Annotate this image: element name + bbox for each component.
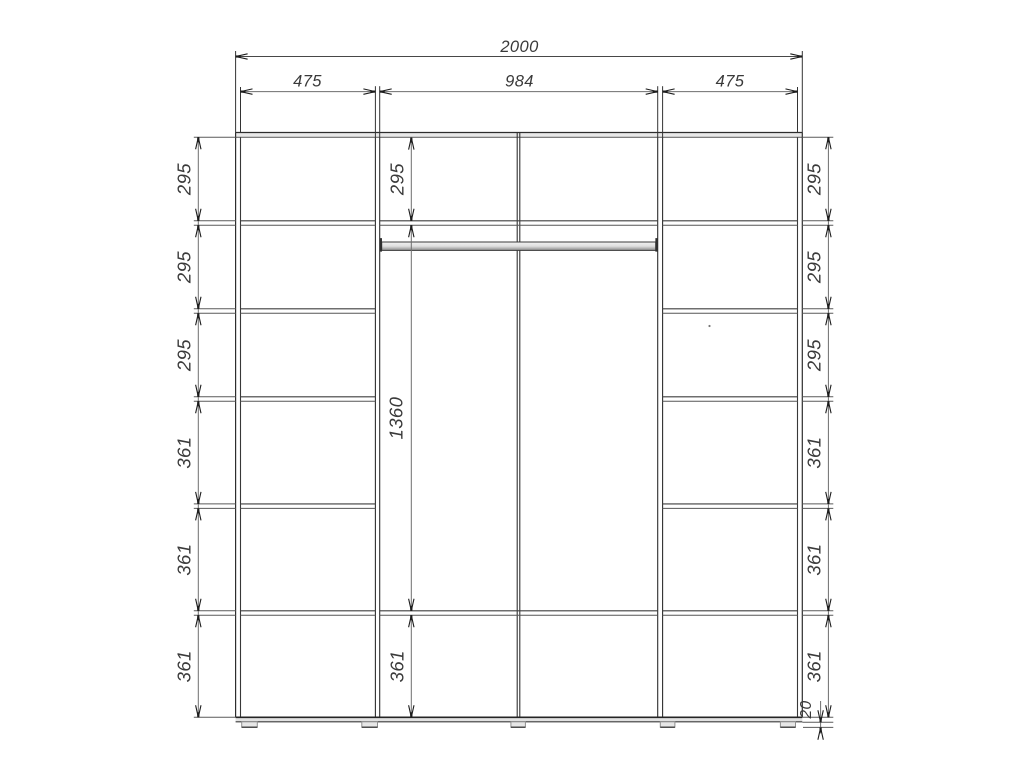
svg-text:475: 475 [716, 72, 745, 90]
svg-text:361: 361 [174, 437, 195, 469]
svg-text:361: 361 [174, 544, 195, 576]
svg-text:361: 361 [804, 544, 825, 576]
svg-text:361: 361 [804, 650, 825, 682]
svg-text:295: 295 [804, 163, 825, 196]
svg-text:295: 295 [174, 251, 195, 284]
svg-text:20: 20 [798, 700, 815, 719]
svg-text:295: 295 [174, 339, 195, 372]
svg-text:2000: 2000 [499, 38, 539, 56]
svg-text:295: 295 [174, 163, 195, 196]
svg-text:361: 361 [387, 650, 408, 682]
svg-text:361: 361 [174, 650, 195, 682]
svg-text:295: 295 [804, 339, 825, 372]
svg-text:295: 295 [387, 163, 408, 196]
svg-text:361: 361 [804, 437, 825, 469]
svg-text:1360: 1360 [386, 396, 407, 439]
svg-text:984: 984 [505, 72, 534, 90]
svg-text:295: 295 [804, 251, 825, 284]
svg-text:475: 475 [293, 72, 322, 90]
